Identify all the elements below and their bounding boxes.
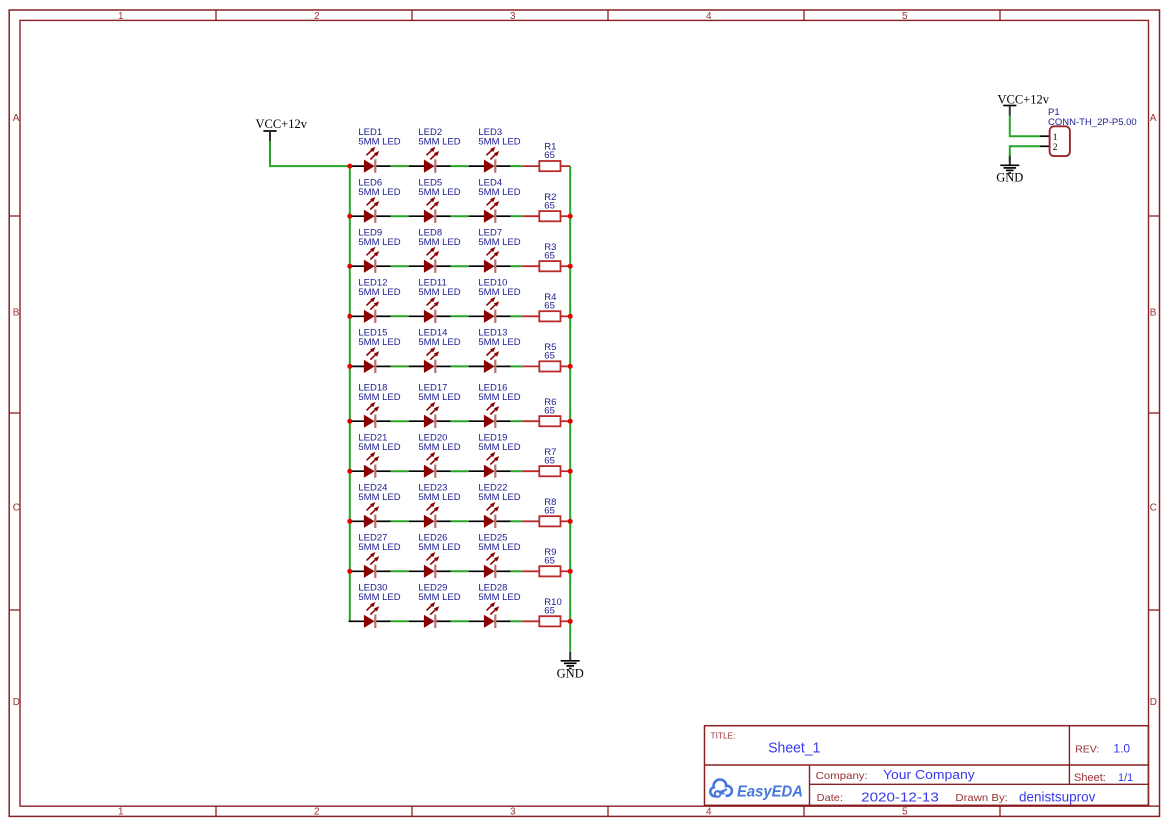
svg-text:5MM LED: 5MM LED — [478, 492, 520, 503]
svg-text:5MM LED: 5MM LED — [478, 392, 520, 403]
svg-text:65: 65 — [544, 200, 555, 211]
svg-text:VCC+12v: VCC+12v — [998, 93, 1050, 107]
svg-text:Sheet:: Sheet: — [1074, 772, 1106, 784]
svg-text:2: 2 — [314, 807, 320, 818]
svg-text:5MM LED: 5MM LED — [358, 542, 400, 553]
svg-text:Drawn By:: Drawn By: — [955, 792, 1007, 804]
svg-text:2020-12-13: 2020-12-13 — [861, 789, 939, 804]
svg-text:A: A — [1150, 113, 1157, 124]
svg-text:GND: GND — [557, 667, 584, 681]
svg-text:Sheet_1: Sheet_1 — [768, 741, 820, 757]
svg-text:Your Company: Your Company — [883, 767, 975, 782]
svg-text:5MM LED: 5MM LED — [358, 337, 400, 348]
svg-text:5MM LED: 5MM LED — [418, 237, 460, 248]
svg-text:3: 3 — [510, 11, 516, 22]
svg-text:5MM LED: 5MM LED — [478, 337, 520, 348]
svg-text:5MM LED: 5MM LED — [418, 392, 460, 403]
svg-text:5MM LED: 5MM LED — [358, 592, 400, 603]
svg-text:5MM LED: 5MM LED — [478, 137, 520, 148]
svg-text:5MM LED: 5MM LED — [418, 442, 460, 453]
svg-text:3: 3 — [510, 807, 516, 818]
svg-text:1.0: 1.0 — [1113, 742, 1130, 756]
svg-text:65: 65 — [544, 250, 555, 261]
svg-text:4: 4 — [706, 11, 712, 22]
svg-text:5MM LED: 5MM LED — [358, 137, 400, 148]
svg-text:4: 4 — [706, 807, 712, 818]
svg-text:65: 65 — [544, 300, 555, 311]
svg-text:5MM LED: 5MM LED — [478, 442, 520, 453]
svg-text:Company:: Company: — [816, 770, 868, 782]
svg-text:Date:: Date: — [817, 792, 843, 804]
svg-text:65: 65 — [544, 505, 555, 516]
svg-text:5MM LED: 5MM LED — [358, 392, 400, 403]
svg-text:5MM LED: 5MM LED — [478, 542, 520, 553]
svg-text:5: 5 — [902, 807, 908, 818]
svg-text:5MM LED: 5MM LED — [478, 287, 520, 298]
svg-text:5MM LED: 5MM LED — [478, 592, 520, 603]
svg-text:1: 1 — [118, 11, 124, 22]
svg-text:5MM LED: 5MM LED — [358, 237, 400, 248]
svg-text:65: 65 — [544, 455, 555, 466]
svg-text:EasyEDA: EasyEDA — [737, 783, 803, 800]
svg-text:denistsuprov: denistsuprov — [1019, 789, 1096, 804]
svg-text:2: 2 — [1053, 143, 1058, 153]
svg-text:5MM LED: 5MM LED — [418, 542, 460, 553]
svg-text:5MM LED: 5MM LED — [478, 237, 520, 248]
svg-text:2: 2 — [314, 11, 320, 22]
svg-text:5MM LED: 5MM LED — [418, 592, 460, 603]
svg-text:B: B — [1150, 308, 1157, 319]
svg-text:5MM LED: 5MM LED — [418, 337, 460, 348]
svg-text:65: 65 — [544, 605, 555, 616]
svg-text:65: 65 — [544, 405, 555, 416]
svg-text:5MM LED: 5MM LED — [358, 287, 400, 298]
svg-text:65: 65 — [544, 351, 555, 362]
svg-text:5MM LED: 5MM LED — [418, 287, 460, 298]
svg-text:C: C — [1150, 502, 1157, 513]
svg-text:1: 1 — [1053, 133, 1058, 143]
svg-text:D: D — [13, 697, 20, 708]
svg-text:5MM LED: 5MM LED — [358, 442, 400, 453]
svg-text:5: 5 — [902, 11, 908, 22]
svg-text:VCC+12v: VCC+12v — [256, 117, 308, 131]
svg-text:1: 1 — [118, 807, 124, 818]
svg-text:5MM LED: 5MM LED — [418, 137, 460, 148]
svg-text:A: A — [13, 113, 20, 124]
svg-text:TITLE:: TITLE: — [711, 730, 736, 740]
svg-text:65: 65 — [544, 555, 555, 566]
svg-text:5MM LED: 5MM LED — [358, 187, 400, 198]
svg-text:5MM LED: 5MM LED — [478, 187, 520, 198]
svg-text:B: B — [13, 308, 20, 319]
svg-text:REV:: REV: — [1075, 743, 1099, 755]
svg-text:GND: GND — [996, 170, 1023, 184]
svg-text:5MM LED: 5MM LED — [418, 492, 460, 503]
svg-text:1/1: 1/1 — [1118, 772, 1133, 784]
svg-text:C: C — [13, 502, 20, 513]
svg-text:D: D — [1150, 697, 1157, 708]
svg-text:65: 65 — [544, 150, 555, 161]
svg-text:5MM LED: 5MM LED — [418, 187, 460, 198]
svg-text:5MM LED: 5MM LED — [358, 492, 400, 503]
